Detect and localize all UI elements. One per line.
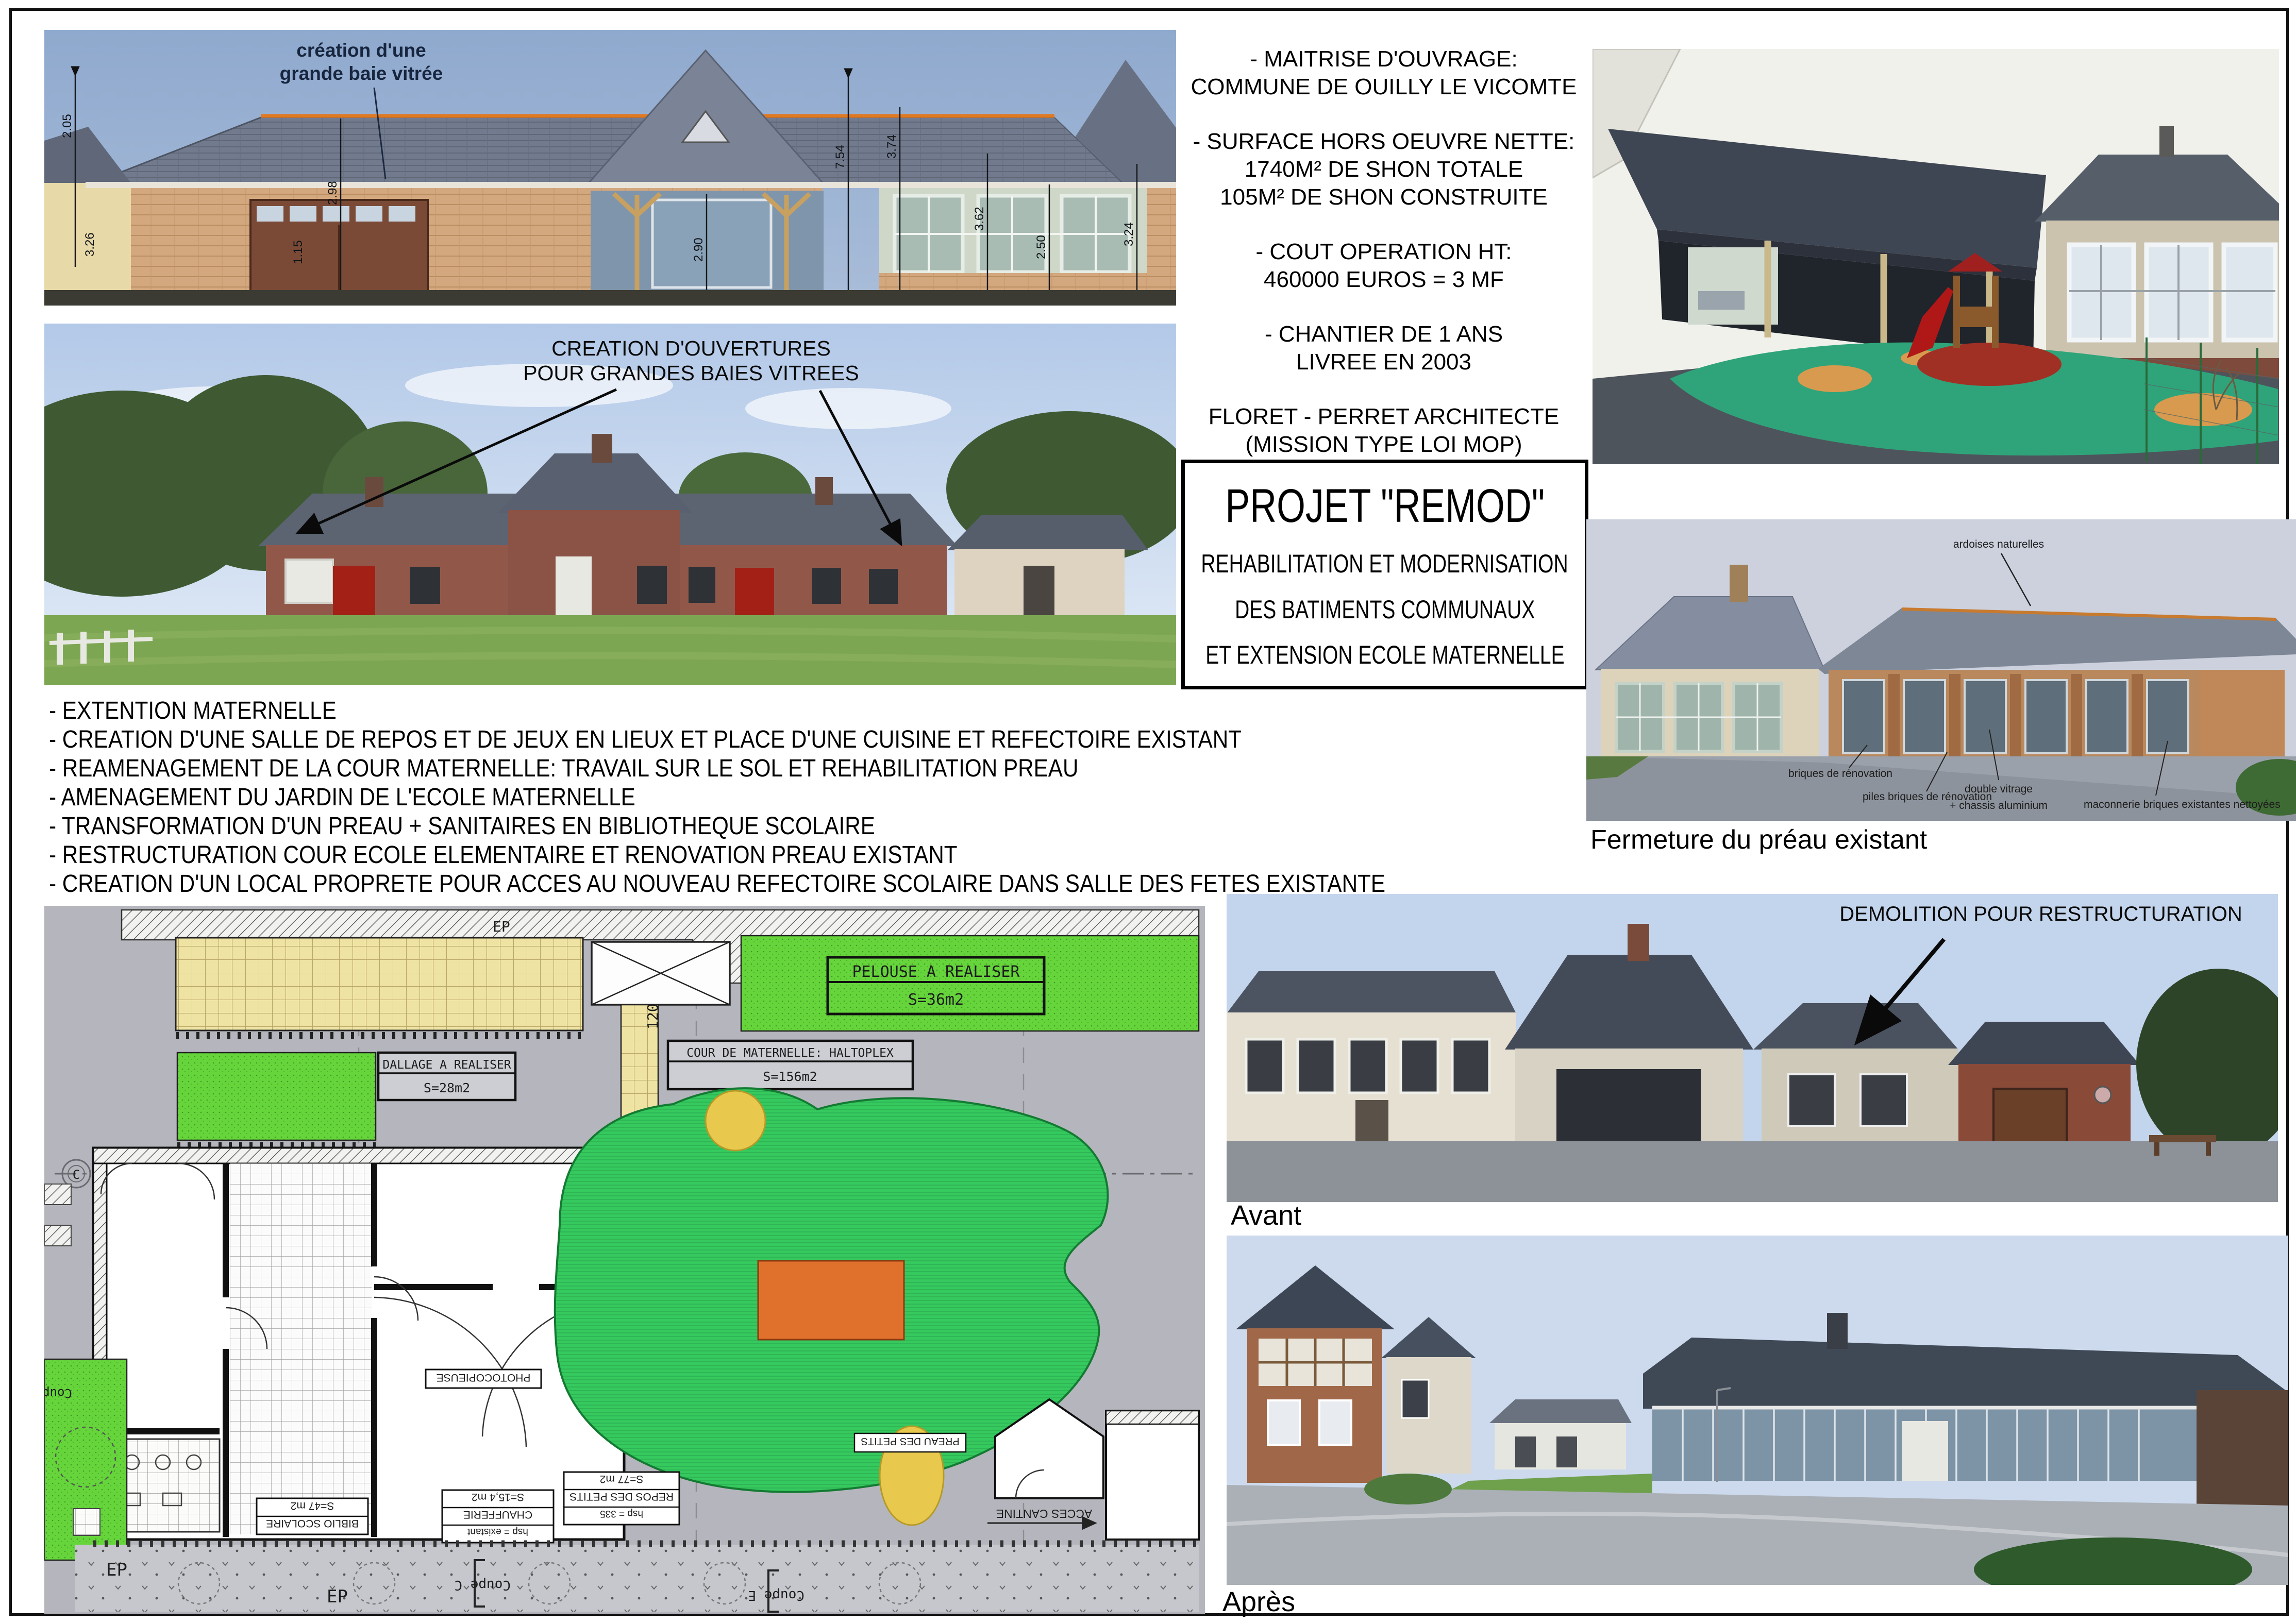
info-line: FLORET - PERRET ARCHITECTE [1180, 403, 1587, 431]
svg-text:3.62: 3.62 [973, 207, 986, 231]
acces-cantine-label: ACCES CANTINE [996, 1507, 1093, 1520]
svg-text:7.54: 7.54 [833, 145, 847, 169]
repos-h: hsp = 335 [600, 1508, 643, 1519]
crossed-box [592, 942, 730, 1005]
yellow-circle [706, 1091, 765, 1151]
works-item: - TRANSFORMATION D'UN PREAU + SANITAIRES… [49, 812, 875, 841]
label-glazing2: + chassis aluminium [1950, 800, 2048, 811]
chimney [1827, 1313, 1848, 1349]
project-info-panel: - MAITRISE D'OUVRAGE: COMMUNE DE OUILLY … [1180, 45, 1587, 459]
white-door [556, 556, 592, 615]
info-line: 460000 EUROS = 3 MF [1180, 266, 1587, 294]
info-line: - MAITRISE D'OUVRAGE: [1180, 45, 1587, 73]
dallage-title: DALLAGE A REALISER [382, 1058, 511, 1072]
tiled-floor [230, 1163, 372, 1534]
coupe-c-label: Coupe C [454, 1577, 511, 1593]
svg-text:3.24: 3.24 [1122, 222, 1136, 246]
green-framed-windows [895, 196, 1130, 272]
new-extension [1818, 608, 2296, 757]
preau-courtyard-photo [1593, 49, 2279, 464]
wing-window-2 [1861, 1074, 1907, 1126]
coupe-label: Coupe [44, 1386, 72, 1400]
brick-garage [1948, 1022, 2140, 1162]
wing-window [1788, 1074, 1835, 1126]
label-masonry: maconnerie briques existantes nettoyées [2084, 799, 2281, 810]
preau-petits-label: PREAU DES PETITS [861, 1435, 959, 1447]
dallage-area: S=28m2 [424, 1080, 470, 1095]
annotation-line1: création d'une [296, 40, 426, 61]
presentation-board: 2.05 3.26 2.98 1.15 2.90 7.54 3.74 3.62 … [0, 0, 2296, 1623]
pelouse-title: PELOUSE A REALISER [852, 963, 1020, 981]
biblio-label: BIBLIO SCOLAIRE [266, 1517, 359, 1529]
cour-area: S=156m2 [763, 1069, 817, 1084]
svg-text:2.90: 2.90 [692, 238, 706, 262]
elevation-drawing: 2.05 3.26 2.98 1.15 2.90 7.54 3.74 3.62 … [44, 30, 1176, 306]
existing-brick-end [2200, 670, 2285, 757]
coupe-e-label: Coupe E [748, 1587, 805, 1603]
chaufferie-label: CHAUFFERIE [463, 1509, 532, 1520]
works-item: - EXTENTION MATERNELLE [49, 697, 337, 725]
right-wing-roof [947, 515, 1148, 550]
svg-text:2.05: 2.05 [60, 114, 74, 138]
green-band-left [177, 1053, 376, 1140]
info-line: (MISSION TYPE LOI MOP) [1180, 431, 1587, 459]
chaufferie-area: S=15,4 m2 [472, 1491, 524, 1503]
apres-photo [1227, 1236, 2288, 1585]
white-window [286, 560, 333, 603]
building-plan [93, 1148, 624, 1540]
distant-building [1489, 1399, 1632, 1469]
fascia [86, 182, 1176, 188]
wall-poche-top [93, 1148, 624, 1163]
ep-mark: EP [493, 918, 510, 935]
rendering-caption: Fermeture du préau existant [1590, 824, 1927, 855]
hedge-left [1364, 1474, 1452, 1504]
svg-text:3.74: 3.74 [885, 134, 899, 159]
svg-text:3.26: 3.26 [83, 232, 97, 257]
facade [131, 188, 1176, 291]
info-line: - SURFACE HORS OEUVRE NETTE: [1180, 128, 1587, 156]
svg-text:2.98: 2.98 [326, 181, 340, 205]
info-line: - COUT OPERATION HT: [1180, 238, 1587, 266]
title-line4: ET EXTENSION ECOLE MATERNELLE [1205, 640, 1564, 670]
dark-opening [1556, 1069, 1701, 1146]
label-brick: briques de rénovation [1788, 768, 1892, 780]
left-coupe-strip: Coupe [44, 1359, 127, 1560]
site-plan-drawing: PELOUSE A REALISER S=36m2 EP 120 C DALLA… [44, 906, 1205, 1614]
works-item: - AMENAGEMENT DU JARDIN DE L'ECOLE MATER… [49, 783, 635, 812]
red-door-right [735, 568, 774, 615]
repos-label: REPOS DES PETITS [569, 1491, 674, 1502]
photo-annotation-line1: CREATION D'OUVERTURES [551, 336, 831, 360]
apres-caption: Après [1222, 1586, 1295, 1618]
axis-marker: C [73, 1168, 80, 1182]
orange-play-rect [758, 1261, 904, 1340]
works-item: - CREATION D'UNE SALLE DE REPOS ET DE JE… [49, 725, 1242, 754]
chimney [1628, 924, 1649, 961]
info-line: 1740M² DE SHON TOTALE [1180, 156, 1587, 183]
works-item: - RESTRUCTURATION COUR ECOLE ELEMENTAIRE… [49, 841, 958, 870]
chimney [2159, 126, 2174, 157]
works-list: - EXTENTION MATERNELLE - CREATION D'UNE … [49, 697, 1595, 899]
title-line3: DES BATIMENTS COMMUNAUX [1235, 595, 1535, 624]
works-item: - CREATION D'UN LOCAL PROPRETE POUR ACCE… [49, 870, 1385, 899]
info-line: COMMUNE DE OUILLY LE VICOMTE [1180, 73, 1587, 101]
ground-line [44, 290, 1176, 306]
avant-photo: DEMOLITION POUR RESTRUCTURATION [1227, 894, 2278, 1202]
dallage-label-box: DALLAGE A REALISER S=28m2 [378, 1053, 515, 1100]
svg-text:2.50: 2.50 [1034, 235, 1048, 259]
svg-text:1.15: 1.15 [291, 240, 305, 264]
title-line2: REHABILITATION ET MODERNISATION [1201, 549, 1568, 579]
sanitary-block [111, 1439, 220, 1532]
yellow-terrace-band [176, 938, 583, 1030]
chimney [1730, 565, 1748, 602]
door [1355, 1100, 1388, 1142]
pavement-strip: EP EP Coupe C Coupe E [75, 1544, 1199, 1612]
photocopieuse-label: PHOTOCOPIEUSE [437, 1372, 531, 1383]
large-glass-pane [652, 200, 771, 288]
label-roof: ardoises naturelles [1953, 538, 2044, 550]
photo-annotation-line2: POUR GRANDES BAIES VITREES [523, 361, 859, 385]
red-door-left [333, 566, 375, 616]
dim-120: 120 [644, 1003, 661, 1029]
chaufferie-h: hsp = existant [467, 1526, 528, 1537]
red-floor-patch [1917, 343, 2062, 386]
cour-title: COUR DE MATERNELLE: HALTOPLEX [686, 1046, 894, 1060]
works-item: - REAMENAGEMENT DE LA COUR MATERNELLE: T… [49, 754, 1078, 783]
ep-mark-2: EP [106, 1560, 127, 1580]
avant-caption: Avant [1231, 1199, 1301, 1231]
existing-building-photo: CREATION D'OUVERTURES POUR GRANDES BAIES… [44, 324, 1176, 685]
annotation-line2: grande baie vitrée [280, 63, 443, 84]
round-vent [2094, 1087, 2111, 1103]
extension-rendering: ardoises naturelles briques de rénovatio… [1586, 519, 2296, 821]
title-line1: PROJET "REMOD" [1225, 479, 1545, 533]
info-line: - CHANTIER DE 1 ANS [1180, 320, 1587, 348]
porch [1902, 1421, 1948, 1481]
pelouse-area: S=36m2 [908, 991, 964, 1009]
label-glazing1: double vitrage [1965, 783, 2033, 795]
info-line: 105M² DE SHON CONSTRUITE [1180, 183, 1587, 211]
info-line: LIVREE EN 2003 [1180, 348, 1587, 376]
green-band-right [741, 936, 1199, 1031]
lawn [44, 615, 1176, 685]
cour-label-box: COUR DE MATERNELLE: HALTOPLEX S=156m2 [668, 1041, 913, 1089]
asphalt-yard [1227, 1141, 2278, 1202]
ep-mark-3: EP [327, 1586, 348, 1607]
project-title-box: PROJET "REMOD" REHABILITATION ET MODERNI… [1181, 460, 1588, 689]
right-wing-door [1024, 566, 1054, 615]
biblio-area: S=47 m2 [291, 1500, 334, 1512]
demolition-annotation: DEMOLITION POUR RESTRUCTURATION [1839, 903, 2242, 925]
brick-end-wall [2197, 1390, 2288, 1506]
distant-car [1698, 291, 1745, 310]
left-school [1227, 971, 1516, 1142]
repos-area: S=77 m2 [600, 1473, 644, 1485]
